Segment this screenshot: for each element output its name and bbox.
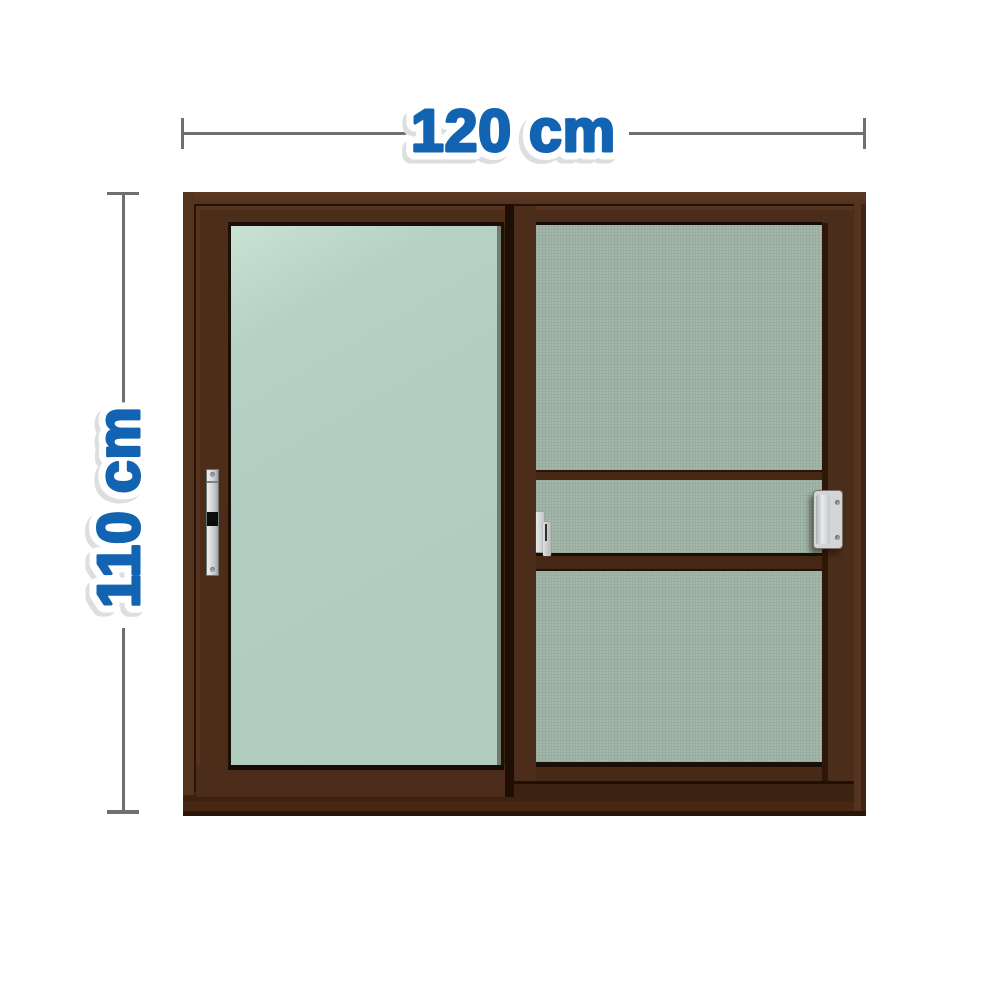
svg-text:110 cm: 110 cm: [86, 406, 152, 608]
svg-text:120 cm: 120 cm: [411, 98, 616, 164]
